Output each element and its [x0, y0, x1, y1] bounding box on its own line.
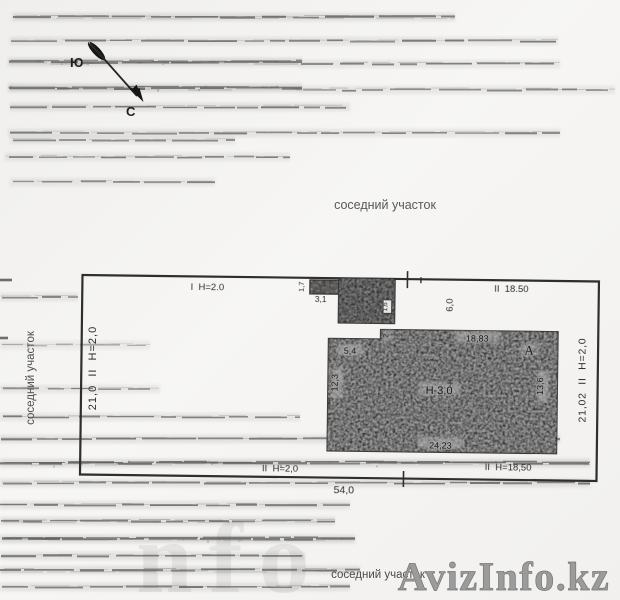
svg-text:12,3: 12,3: [330, 374, 340, 392]
svg-text:II 18.50: II 18.50: [494, 284, 528, 295]
svg-text:соседний участок: соседний участок: [334, 198, 436, 212]
svg-text:24,23: 24,23: [429, 440, 452, 450]
svg-text:1,6: 1,6: [382, 302, 389, 312]
svg-text:2: 2: [381, 334, 390, 338]
svg-text:3,1: 3,1: [315, 294, 327, 304]
svg-text:AvizInfo.kz: AvizInfo.kz: [398, 554, 610, 599]
svg-text:Ю: Ю: [70, 55, 83, 70]
svg-text:13,6: 13,6: [535, 377, 545, 395]
svg-text:1,7: 1,7: [297, 281, 306, 292]
svg-text:21,02 II H=2,0: 21,02 II H=2,0: [577, 338, 589, 423]
svg-text:nfo: nfo: [136, 502, 326, 600]
svg-text:С: С: [126, 104, 136, 119]
svg-text:II H=18,50: II H=18,50: [485, 462, 532, 474]
svg-text:соседний участок: соседний участок: [25, 330, 37, 425]
svg-text:А: А: [524, 343, 534, 358]
svg-text:5,4: 5,4: [344, 346, 357, 356]
svg-text:II H=2,0: II H=2,0: [262, 463, 298, 474]
svg-text:54,0: 54,0: [334, 484, 355, 496]
svg-text:21,0 II H=2,0: 21,0 II H=2,0: [87, 326, 99, 410]
svg-text:I H=2.0: I H=2.0: [191, 282, 225, 293]
svg-text:Н-3,0: Н-3,0: [426, 385, 453, 397]
svg-text:18,83: 18,83: [466, 333, 489, 343]
svg-text:6,0: 6,0: [445, 298, 456, 311]
